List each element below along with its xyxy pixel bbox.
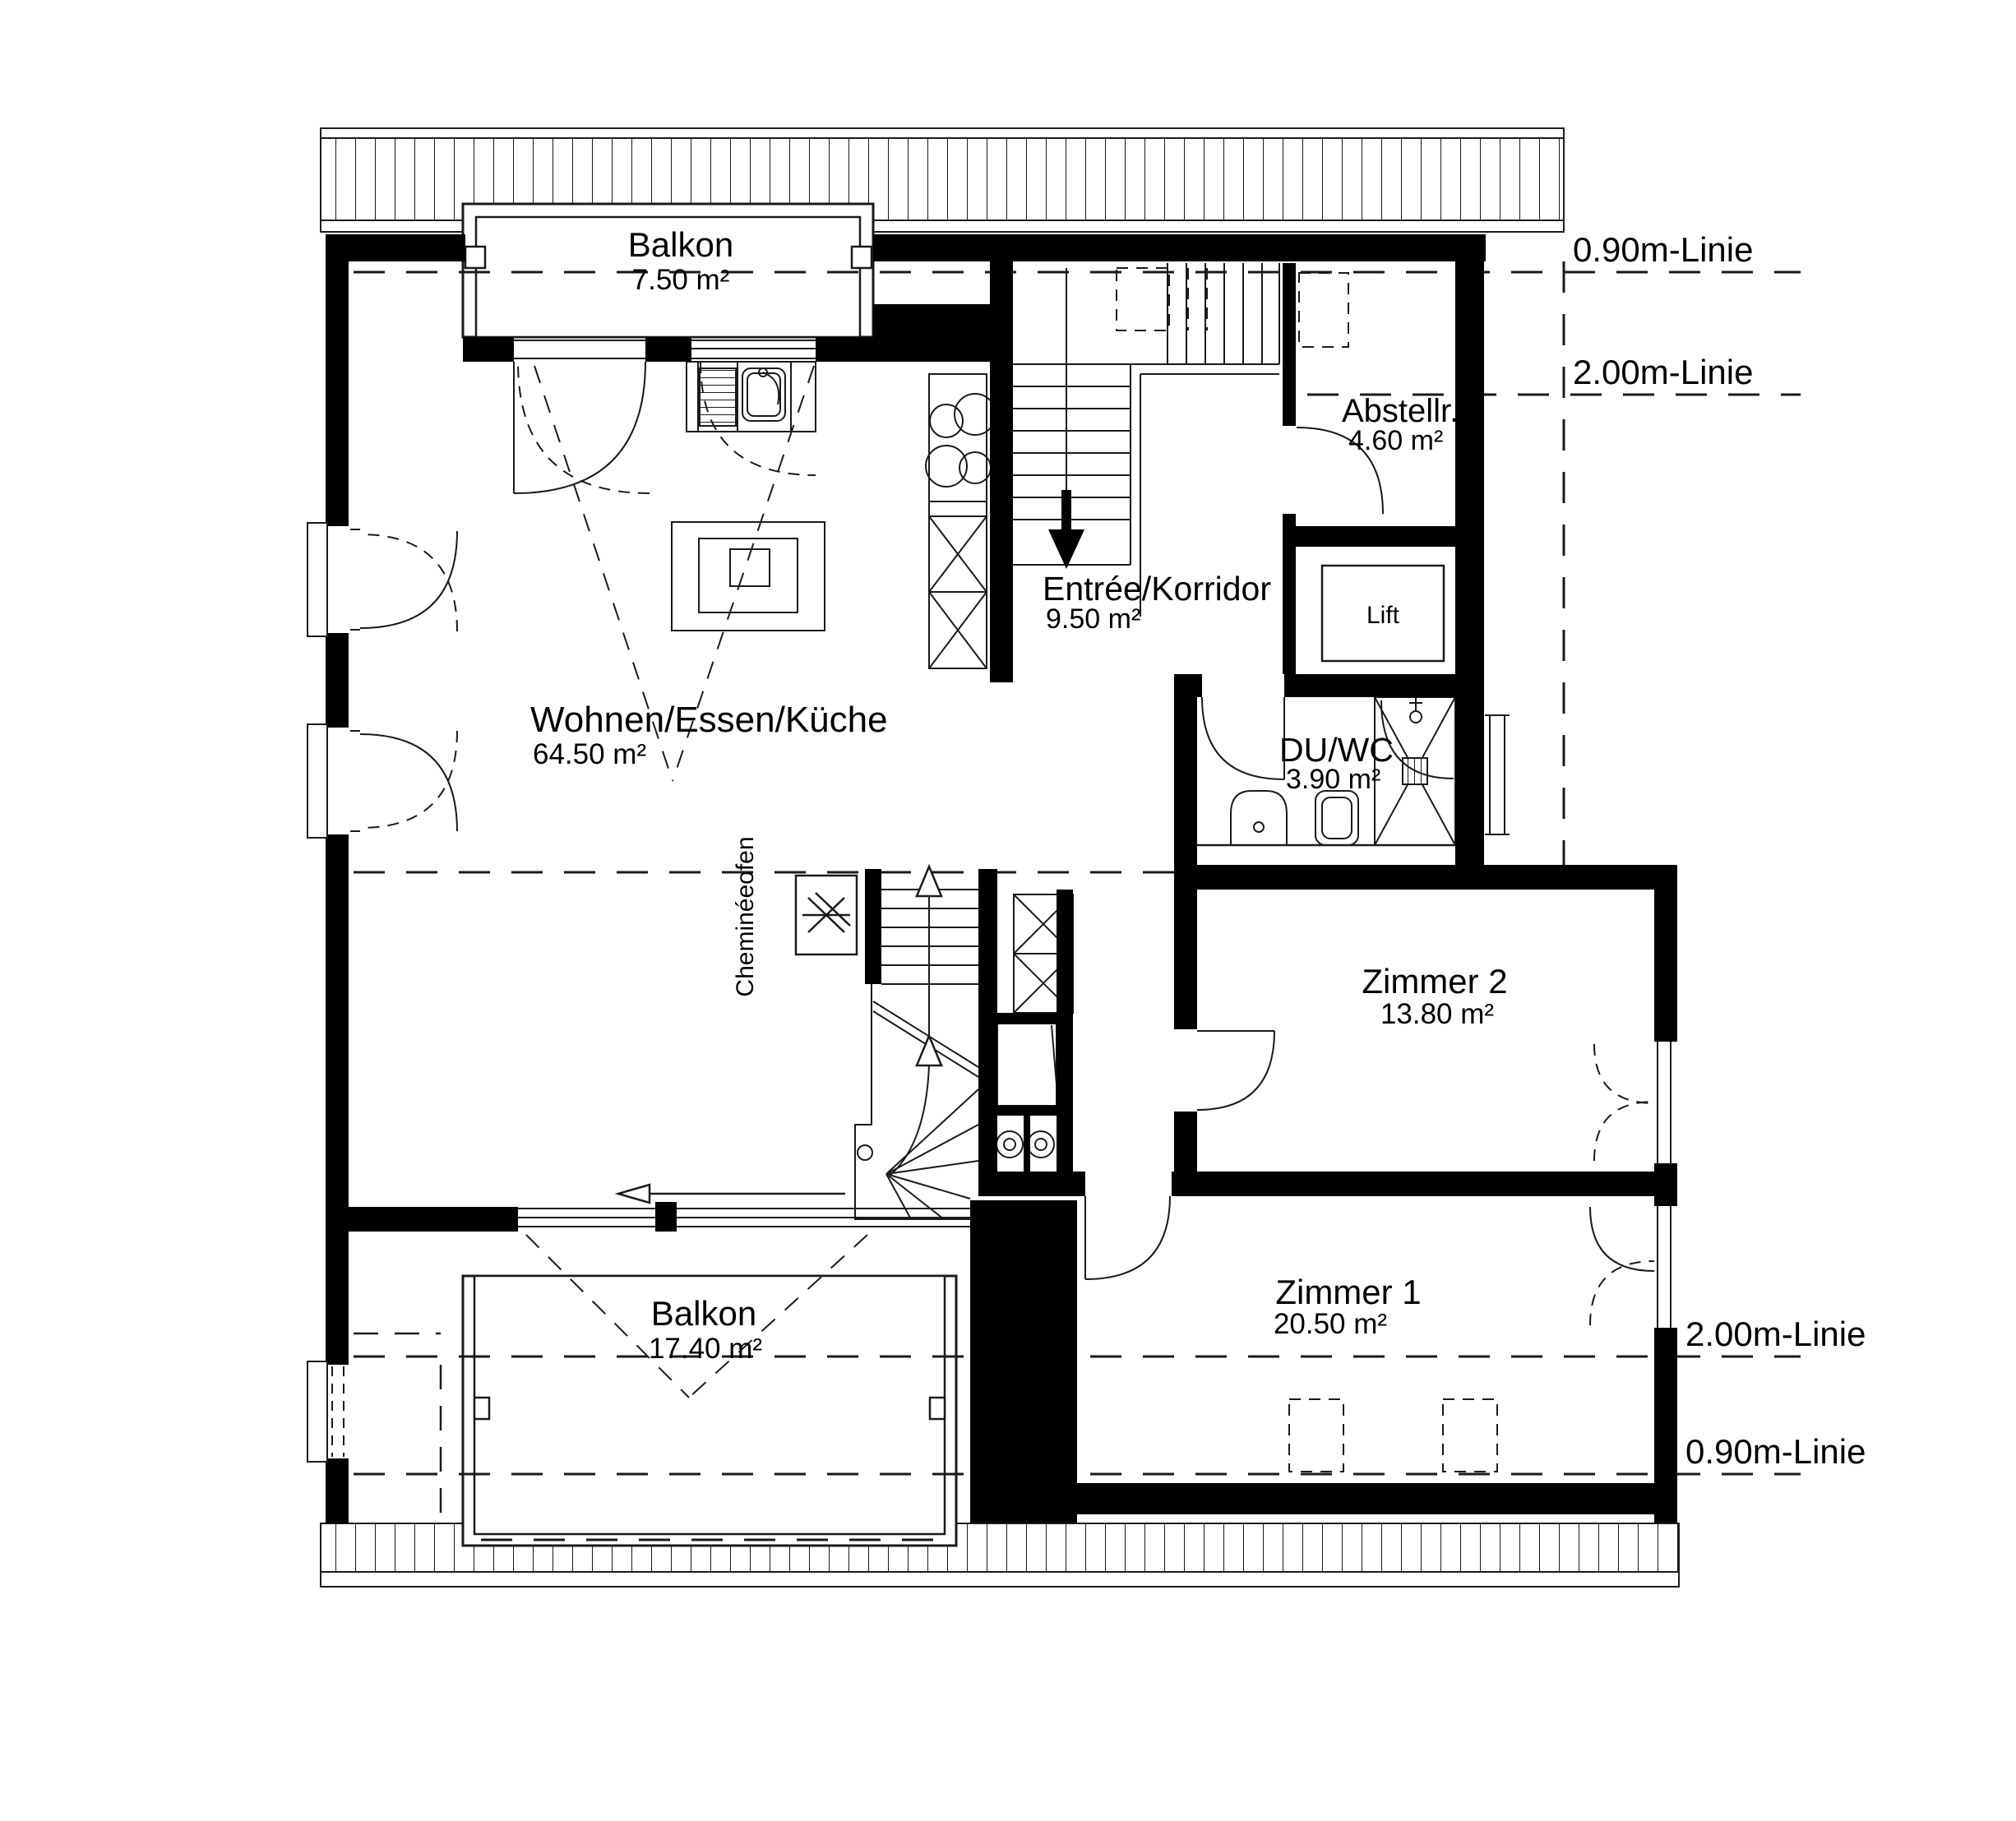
room-area-zimmer1: 20.50 m²: [1274, 1308, 1387, 1340]
kitchen-island: [672, 522, 825, 631]
room-label-zimmer2: Zimmer 2: [1362, 962, 1507, 1001]
room-area-duwc: 3.90 m²: [1286, 764, 1380, 795]
left-window-swings: [360, 531, 457, 831]
room-label-lift: Lift: [1366, 602, 1400, 629]
annotation-200-bottom: 2.00m-Linie: [1685, 1315, 1866, 1353]
room-label-entree: Entrée/Korridor: [1043, 570, 1271, 608]
room-label-wohnen: Wohnen/Essen/Küche: [530, 700, 888, 740]
burner-icon: [930, 404, 963, 437]
sink-icon: [1231, 791, 1287, 845]
room-label-zimmer1: Zimmer 1: [1275, 1273, 1421, 1311]
room-area-zimmer2: 13.80 m²: [1380, 998, 1494, 1030]
room-label-balkon-top: Balkon: [628, 225, 733, 264]
burner-icon: [926, 446, 967, 487]
slide-direction-arrow-icon: [618, 1185, 650, 1203]
kitchen-counter: [687, 362, 816, 432]
room-area-abstellraum: 4.60 m²: [1348, 425, 1443, 456]
kitchen-stove-cabinets: [926, 374, 996, 668]
cheminee-stove: [796, 876, 857, 954]
zimmer2-door-windows: [1197, 1031, 1671, 1163]
label-cheminee: Cheminéeofen: [732, 836, 759, 996]
bottom-left-niche: [354, 1333, 441, 1521]
room-label-abstellraum: Abstellr.: [1342, 393, 1459, 429]
stove-symbol-icon: [802, 893, 850, 932]
room-area-wohnen: 64.50 m²: [533, 738, 646, 770]
room-label-balkon-bottom: Balkon: [651, 1294, 756, 1333]
room-area-balkon-top: 7.50 m²: [632, 264, 730, 296]
roof-window-dashed: [1443, 1399, 1497, 1472]
annotation-090-top: 0.90m-Linie: [1573, 230, 1753, 269]
annotation-200-top: 2.00m-Linie: [1573, 353, 1753, 391]
room-area-balkon-bottom: 17.40 m²: [649, 1333, 762, 1365]
floorplan-drawing: Balkon 7.50 m² Wohnen/Essen/Küche 64.50 …: [0, 0, 2016, 1821]
room-area-entree: 9.50 m²: [1046, 603, 1140, 635]
annotation-090-bottom: 0.90m-Linie: [1685, 1432, 1866, 1471]
floorplan-page: Balkon 7.50 m² Wohnen/Essen/Küche 64.50 …: [0, 0, 2016, 1821]
roof-window-dashed: [1289, 1399, 1343, 1472]
main-staircase: [1013, 263, 1279, 617]
